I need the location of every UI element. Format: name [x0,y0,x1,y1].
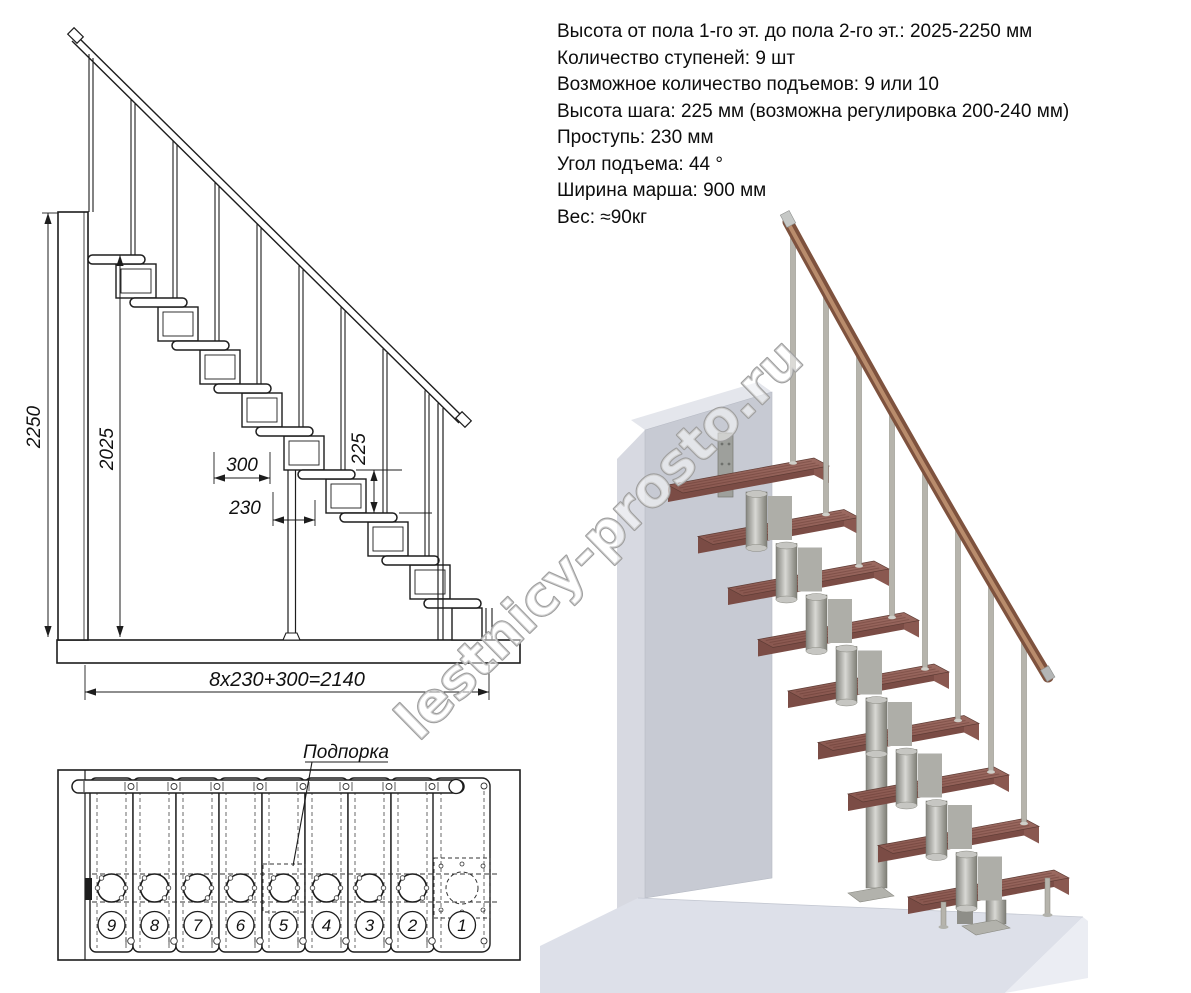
spec-line-floor-height: Высота от пола 1-го эт. до пола 2-го эт.… [557,19,1069,46]
specifications-block: Высота от пола 1-го эт. до пола 2-го эт.… [557,19,1069,231]
step-number-label: 4 [322,916,331,935]
dim-top-tread-label: 300 [226,455,258,476]
spec-line-rise-count: Возможное количество подъемов: 9 или 10 [557,72,1069,99]
step-number-label: 3 [365,916,375,935]
dim-rise-label: 225 [349,433,370,466]
step-number-label: 2 [407,916,418,935]
side-view-elevation-drawing: 2250 2025 300 230 225 8x230+300=2140 [0,0,540,725]
plan-view-drawing: Подпорка 987654321 [0,725,540,993]
spec-line-width: Ширина марша: 900 мм [557,178,1069,205]
step-number-label: 8 [150,916,160,935]
dim-total-height-label: 2250 [24,405,45,449]
step-number-label: 6 [236,916,246,935]
step-number-label: 5 [279,916,289,935]
step-number-label: 7 [193,916,203,935]
spec-line-tread-depth: Проступь: 230 мм [557,125,1069,152]
render-geometry [540,210,1088,993]
step-number-label: 9 [107,916,117,935]
stair-3d-render [540,210,1191,993]
side-view-geometry [42,28,520,700]
step-numbers: 987654321 [98,912,476,939]
spec-line-angle: Угол подъема: 44 ° [557,152,1069,179]
spec-line-weight: Вес: ≈90кг [557,205,1069,232]
step-number-label: 1 [457,916,466,935]
support-label: Подпорка [303,742,389,763]
stair-specification-sheet: 2250 2025 300 230 225 8x230+300=2140 Под… [0,0,1191,993]
dim-run-label: 230 [228,498,261,519]
dim-total-run-label: 8x230+300=2140 [209,669,365,691]
dim-clear-height-label: 2025 [97,427,118,471]
spec-line-step-height: Высота шага: 225 мм (возможна регулировк… [557,99,1069,126]
spec-line-step-count: Количество ступеней: 9 шт [557,46,1069,73]
